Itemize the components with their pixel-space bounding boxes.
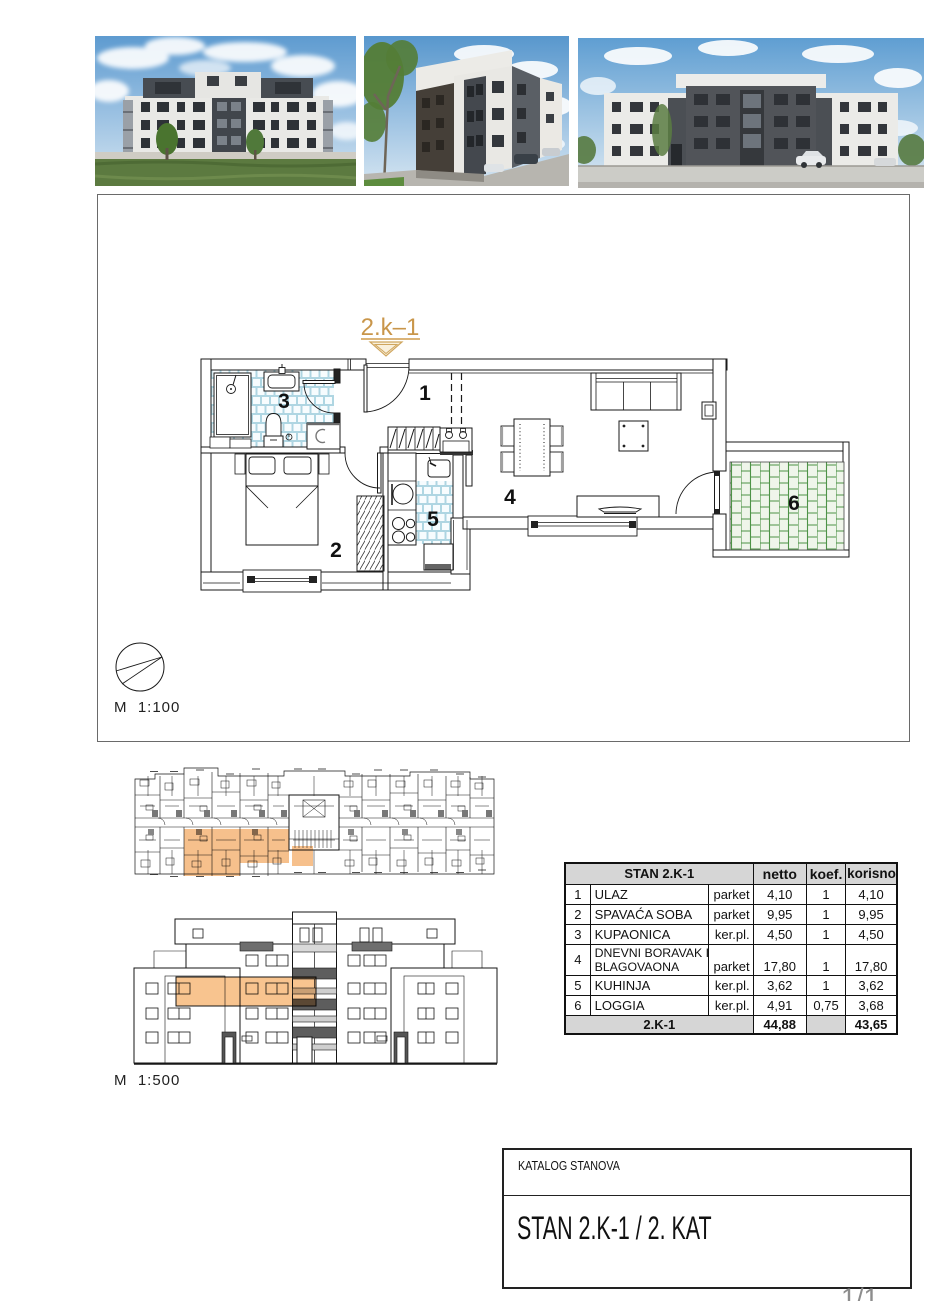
svg-text:2.k–1: 2.k–1 [361, 314, 420, 341]
svg-text:5: 5 [427, 508, 439, 531]
svg-text:M 1:100: M 1:100 [114, 699, 180, 716]
svg-text:4: 4 [504, 486, 516, 509]
svg-text:1: 1 [419, 382, 431, 405]
svg-text:2: 2 [330, 539, 342, 562]
svg-text:3: 3 [278, 390, 290, 413]
svg-text:6: 6 [788, 492, 800, 515]
